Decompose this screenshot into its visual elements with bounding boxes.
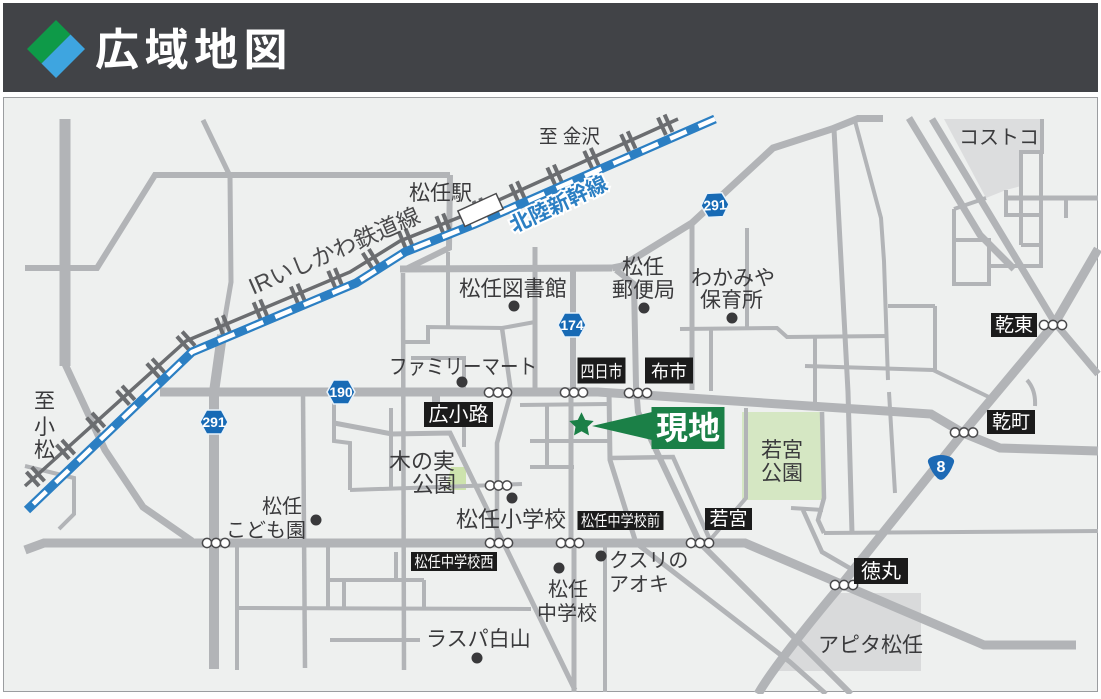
svg-text:291: 291 — [202, 414, 226, 430]
svg-text:乾東: 乾東 — [995, 314, 1033, 336]
svg-text:松任: 松任 — [548, 578, 588, 601]
svg-text:広域地図: 広域地図 — [95, 26, 293, 75]
svg-text:松任: 松任 — [262, 495, 302, 518]
svg-text:保育所: 保育所 — [700, 289, 763, 312]
svg-text:至 金沢: 至 金沢 — [539, 126, 600, 148]
svg-text:乾町: 乾町 — [992, 411, 1030, 433]
svg-text:現地: 現地 — [656, 410, 720, 446]
svg-text:小: 小 — [34, 416, 55, 439]
svg-text:174: 174 — [560, 317, 584, 333]
svg-text:中学校: 中学校 — [537, 602, 597, 625]
svg-text:こども園: こども園 — [226, 519, 306, 542]
svg-text:291: 291 — [703, 196, 727, 213]
svg-text:若宮: 若宮 — [709, 508, 747, 530]
svg-text:アピタ松任: アピタ松任 — [818, 634, 923, 657]
svg-text:コストコ: コストコ — [959, 127, 1039, 149]
svg-text:松任: 松任 — [622, 256, 664, 279]
svg-text:広小路: 広小路 — [429, 403, 489, 426]
svg-text:四日市: 四日市 — [581, 363, 623, 382]
svg-text:若宮: 若宮 — [761, 439, 803, 462]
svg-text:松任中学校前: 松任中学校前 — [581, 512, 660, 530]
svg-text:ラスパ白山: ラスパ白山 — [426, 628, 531, 651]
svg-text:8: 8 — [937, 459, 946, 476]
svg-text:アオキ: アオキ — [609, 574, 669, 596]
svg-text:松任小学校: 松任小学校 — [456, 507, 566, 532]
svg-text:布市: 布市 — [651, 362, 687, 382]
svg-text:徳丸: 徳丸 — [861, 560, 901, 583]
svg-text:松任図書館: 松任図書館 — [459, 277, 567, 301]
svg-text:公園: 公園 — [761, 462, 803, 485]
svg-text:松: 松 — [34, 439, 55, 462]
svg-text:ファミリーマート: ファミリーマート — [389, 356, 537, 379]
svg-text:わかみや: わかみや — [691, 267, 775, 290]
svg-text:松任中学校西: 松任中学校西 — [415, 553, 494, 571]
svg-text:公園: 公園 — [412, 472, 456, 497]
svg-text:郵便局: 郵便局 — [612, 279, 675, 302]
svg-text:クスリの: クスリの — [609, 549, 688, 572]
svg-text:至: 至 — [34, 390, 55, 413]
svg-text:190: 190 — [329, 384, 353, 400]
svg-text:木の実: 木の実 — [389, 449, 455, 474]
svg-text:松任駅: 松任駅 — [409, 182, 472, 205]
